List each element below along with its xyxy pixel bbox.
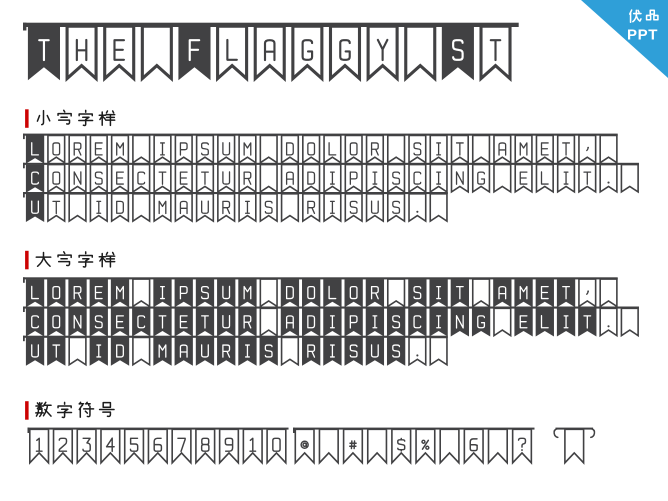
svg-text:PPT: PPT bbox=[627, 27, 658, 44]
